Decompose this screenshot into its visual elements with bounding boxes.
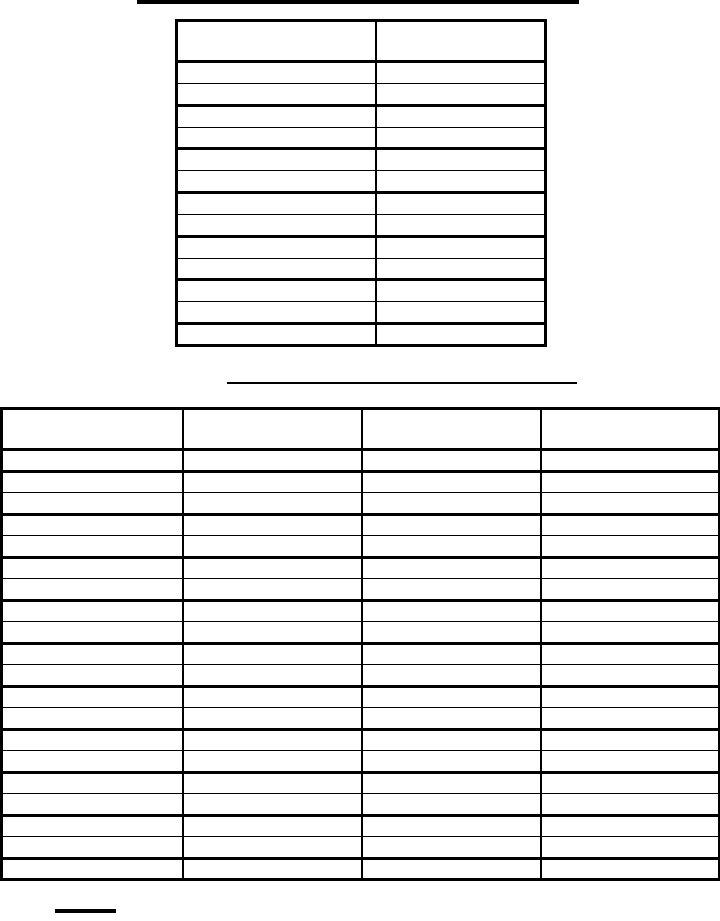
table-cell xyxy=(2,858,183,880)
table-row xyxy=(177,280,546,302)
table-cell xyxy=(177,280,376,302)
table-cell xyxy=(376,83,546,105)
table-cell xyxy=(183,514,362,536)
table-row xyxy=(2,643,720,665)
table-row xyxy=(177,62,546,84)
table-cell xyxy=(177,105,376,127)
table-cell xyxy=(183,751,362,773)
table-header-cell xyxy=(177,21,376,62)
table-cell xyxy=(183,471,362,493)
table-cell xyxy=(362,557,541,579)
table-cell xyxy=(376,171,546,193)
table-cell xyxy=(541,858,720,880)
table-cell xyxy=(362,815,541,837)
table-cell xyxy=(183,794,362,816)
table-cell xyxy=(362,665,541,687)
table-row xyxy=(2,471,720,493)
table-cell xyxy=(362,686,541,708)
table-cell xyxy=(362,794,541,816)
table-cell xyxy=(362,471,541,493)
table-cell xyxy=(541,772,720,794)
table-row xyxy=(177,302,546,324)
table-cell xyxy=(362,514,541,536)
table-row xyxy=(2,579,720,601)
table-cell xyxy=(183,536,362,558)
table-cell xyxy=(177,324,376,346)
table-cell xyxy=(541,471,720,493)
table-cell xyxy=(362,708,541,730)
table-header-cell xyxy=(376,21,546,62)
table-cell xyxy=(541,600,720,622)
table-cell xyxy=(2,772,183,794)
table-cell xyxy=(183,858,362,880)
table-cell xyxy=(2,579,183,601)
table-cell xyxy=(177,193,376,215)
table-cell xyxy=(177,83,376,105)
table-cell xyxy=(2,493,183,515)
table-cell xyxy=(177,127,376,149)
table-cell xyxy=(183,493,362,515)
table-cell xyxy=(376,149,546,171)
table-cell xyxy=(376,324,546,346)
table-cell xyxy=(2,557,183,579)
table-row xyxy=(177,193,546,215)
table-header-cell xyxy=(183,409,362,450)
table-cell xyxy=(183,622,362,644)
table-cell xyxy=(177,258,376,280)
table-cell xyxy=(376,280,546,302)
table-cell xyxy=(541,751,720,773)
table-cell xyxy=(177,214,376,236)
table-cell xyxy=(376,62,546,84)
table-cell xyxy=(177,62,376,84)
table-cell xyxy=(2,622,183,644)
table-cell xyxy=(362,536,541,558)
table-row xyxy=(177,324,546,346)
table-cell xyxy=(177,302,376,324)
table-cell xyxy=(362,579,541,601)
table-cell xyxy=(183,643,362,665)
table-header-cell xyxy=(362,409,541,450)
table-cell xyxy=(2,729,183,751)
table-cell xyxy=(541,579,720,601)
table-cell xyxy=(177,236,376,258)
table-cell xyxy=(376,127,546,149)
table-row xyxy=(177,127,546,149)
table-cell xyxy=(2,751,183,773)
table-cell xyxy=(2,815,183,837)
table-cell xyxy=(362,450,541,472)
table-row xyxy=(2,665,720,687)
table-cell xyxy=(541,493,720,515)
table-cell xyxy=(2,837,183,859)
table-cell xyxy=(2,643,183,665)
table-header-row xyxy=(177,21,546,62)
table-cell xyxy=(2,686,183,708)
table-cell xyxy=(541,794,720,816)
table-cell xyxy=(183,665,362,687)
document-page xyxy=(0,0,720,921)
table-row xyxy=(2,729,720,751)
table-cell xyxy=(541,643,720,665)
table-row xyxy=(2,536,720,558)
table-cell xyxy=(177,149,376,171)
table-row xyxy=(2,600,720,622)
lower-table xyxy=(0,407,720,881)
table-header-cell xyxy=(2,409,183,450)
table-cell xyxy=(183,837,362,859)
footnote-underline xyxy=(55,909,116,913)
table-row xyxy=(177,258,546,280)
table-row xyxy=(2,794,720,816)
upper-table xyxy=(175,19,547,347)
table-cell xyxy=(2,536,183,558)
table-cell xyxy=(362,837,541,859)
table-row xyxy=(2,557,720,579)
table-row xyxy=(2,772,720,794)
table-cell xyxy=(362,858,541,880)
table-cell xyxy=(2,665,183,687)
table-row xyxy=(2,751,720,773)
table-cell xyxy=(541,815,720,837)
table-row xyxy=(2,450,720,472)
table-cell xyxy=(362,643,541,665)
table-row xyxy=(177,236,546,258)
table-row xyxy=(2,622,720,644)
table-cell xyxy=(362,600,541,622)
table-cell xyxy=(183,729,362,751)
table-cell xyxy=(541,837,720,859)
table-row xyxy=(2,837,720,859)
table-cell xyxy=(183,686,362,708)
table-row xyxy=(177,149,546,171)
table-cell xyxy=(376,258,546,280)
table-cell xyxy=(183,772,362,794)
table-cell xyxy=(541,450,720,472)
table-cell xyxy=(376,193,546,215)
table-row xyxy=(177,171,546,193)
top-title-underline xyxy=(137,0,579,4)
table-cell xyxy=(362,751,541,773)
table-cell xyxy=(183,600,362,622)
table-cell xyxy=(2,471,183,493)
table-cell xyxy=(376,236,546,258)
table-row xyxy=(177,214,546,236)
table-cell xyxy=(362,622,541,644)
table-cell xyxy=(183,557,362,579)
table-cell xyxy=(362,772,541,794)
middle-title-underline xyxy=(227,382,577,384)
table-cell xyxy=(2,708,183,730)
table-cell xyxy=(541,557,720,579)
table-cell xyxy=(362,729,541,751)
table-cell xyxy=(2,600,183,622)
table-cell xyxy=(183,815,362,837)
table-cell xyxy=(2,514,183,536)
table-header-cell xyxy=(541,409,720,450)
table-row xyxy=(2,858,720,880)
table-cell xyxy=(2,450,183,472)
table-cell xyxy=(541,622,720,644)
table-row xyxy=(2,686,720,708)
table-cell xyxy=(541,665,720,687)
table-cell xyxy=(362,493,541,515)
table-row xyxy=(2,493,720,515)
table-cell xyxy=(376,214,546,236)
table-cell xyxy=(541,514,720,536)
table-cell xyxy=(376,105,546,127)
table-row xyxy=(2,514,720,536)
table-cell xyxy=(541,686,720,708)
table-cell xyxy=(541,708,720,730)
table-row xyxy=(177,105,546,127)
table-cell xyxy=(376,302,546,324)
table-cell xyxy=(2,794,183,816)
table-cell xyxy=(183,579,362,601)
table-cell xyxy=(541,729,720,751)
table-cell xyxy=(183,708,362,730)
table-cell xyxy=(177,171,376,193)
table-row xyxy=(177,83,546,105)
table-cell xyxy=(183,450,362,472)
table-row xyxy=(2,815,720,837)
table-header-row xyxy=(2,409,720,450)
table-cell xyxy=(541,536,720,558)
table-row xyxy=(2,708,720,730)
